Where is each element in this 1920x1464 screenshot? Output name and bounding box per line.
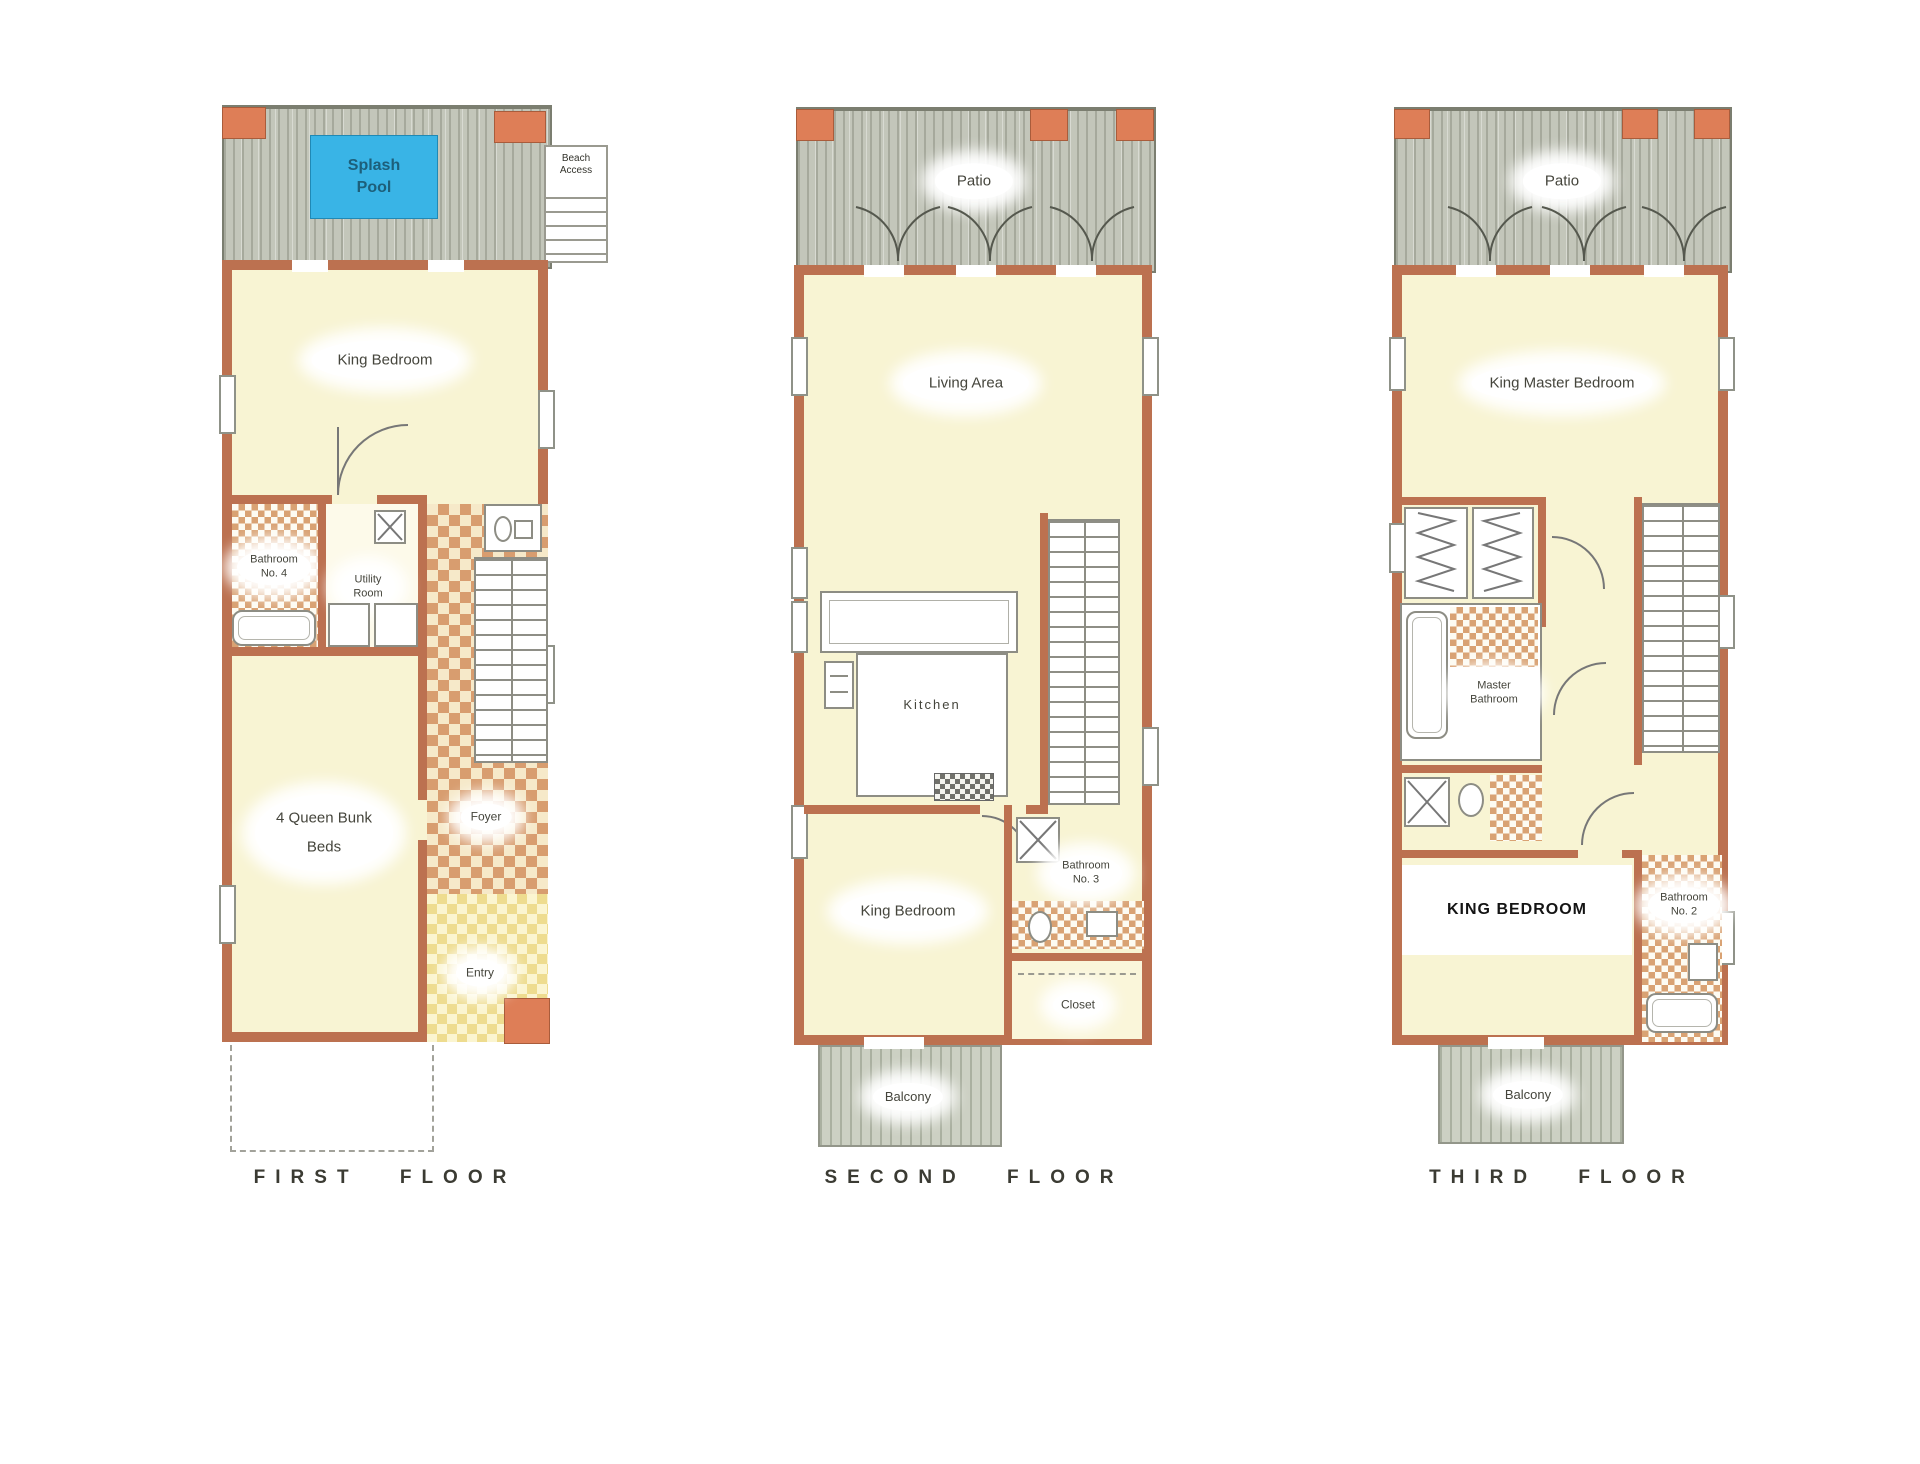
- bathtub-icon: [1646, 993, 1718, 1033]
- window: [791, 547, 808, 599]
- door-swing-icon: [1552, 661, 1608, 717]
- king-bedroom-label: KING BEDROOM: [1447, 901, 1587, 919]
- interior-wall: [1400, 765, 1542, 773]
- master-bathroom-floor: [1450, 607, 1538, 667]
- window: [219, 375, 236, 434]
- entry-label: Entry: [456, 960, 504, 987]
- deck-post: [1030, 109, 1068, 141]
- deck-post: [1394, 109, 1430, 139]
- interior-wall: [232, 495, 332, 504]
- wardrobe-closet: [1472, 507, 1534, 599]
- shower-icon: [1404, 777, 1450, 827]
- patio-label: Patio: [1523, 163, 1601, 199]
- counter-edge: [829, 600, 1009, 644]
- staircase: [1642, 503, 1720, 753]
- wall-block: [504, 998, 550, 1044]
- interior-wall: [1402, 850, 1578, 858]
- interior-wall: [418, 840, 427, 1042]
- deck-post: [494, 111, 546, 143]
- bathroom3-label: Bathroom No. 3: [1050, 855, 1122, 891]
- stair-rail: [1084, 521, 1086, 803]
- kitchen-counter: [820, 591, 1018, 653]
- door-gap: [1056, 265, 1096, 277]
- bunk-room-label: 4 Queen Bunk Beds: [255, 795, 393, 872]
- window: [1142, 727, 1159, 786]
- door-gap: [1550, 265, 1590, 277]
- interior-wall: [1402, 497, 1542, 505]
- door-gap: [864, 1037, 924, 1049]
- bathroom2-label: Bathroom No. 2: [1648, 887, 1720, 923]
- interior-wall: [1040, 513, 1048, 813]
- stair-rail: [511, 559, 513, 761]
- toilet-icon: [1028, 911, 1052, 943]
- living-area-label: Living Area: [903, 363, 1029, 403]
- interior-wall: [1004, 805, 1012, 1045]
- toilet-icon: [494, 516, 512, 542]
- patio-label: Patio: [935, 163, 1013, 199]
- first-floor-title: FIRST FLOOR: [192, 1167, 578, 1189]
- deck-post: [1694, 109, 1730, 139]
- window: [1142, 337, 1159, 396]
- stair-rail: [1682, 505, 1684, 751]
- interior-wall: [1004, 953, 1144, 961]
- bathtub-icon: [232, 610, 316, 646]
- deck-post: [1116, 109, 1154, 141]
- splash-pool: Splash Pool: [310, 135, 438, 219]
- interior-wall: [232, 647, 422, 656]
- beach-access-stairs: Beach Access: [544, 145, 608, 263]
- hall-bath-floor: [1490, 775, 1542, 841]
- deck-post: [1622, 109, 1658, 139]
- door-gap: [1488, 1037, 1544, 1049]
- french-door-icon: [852, 203, 944, 265]
- dryer-icon: [374, 603, 418, 647]
- closet-label: Closet: [1053, 993, 1103, 1018]
- master-bedroom-label: King Master Bedroom: [1471, 363, 1652, 403]
- foyer-label: Foyer: [461, 804, 512, 831]
- window: [791, 601, 808, 653]
- door-gap: [1456, 265, 1496, 277]
- sink-icon: [514, 520, 533, 539]
- first-floor-plan: Splash Pool Beach Access King Bedroom Ba…: [222, 105, 548, 1215]
- interior-wall: [804, 805, 980, 814]
- door-gap: [428, 260, 464, 272]
- third-floor-title: THIRD FLOOR: [1352, 1167, 1772, 1189]
- wardrobe-icon: [1476, 511, 1530, 595]
- french-door-icon: [1638, 203, 1730, 265]
- driveway-outline: [230, 1045, 434, 1152]
- shower-icon: [1016, 817, 1060, 863]
- deck-post: [796, 109, 834, 141]
- bathtub-icon: [1406, 611, 1448, 739]
- laundry-sink-icon: [374, 510, 406, 544]
- wardrobe-closet: [1404, 507, 1468, 599]
- window: [1718, 595, 1735, 649]
- closet-rod: [1018, 973, 1136, 975]
- door-swing-icon: [334, 421, 412, 499]
- king-bedroom-label: King Bedroom: [311, 340, 458, 380]
- second-floor-plan: Patio Living Area Kitchen: [794, 105, 1156, 1215]
- washer-icon: [328, 603, 370, 647]
- french-door-icon: [1046, 203, 1138, 265]
- door-gap: [1644, 265, 1684, 277]
- interior-wall: [318, 504, 326, 647]
- beach-access-label: Beach Access: [550, 153, 602, 177]
- utility-room-label: Utility Room: [341, 569, 395, 605]
- french-door-icon: [1538, 203, 1630, 265]
- door-gap: [956, 265, 996, 277]
- sink-icon: [1688, 943, 1718, 981]
- king-bedroom-label-panel: KING BEDROOM: [1402, 865, 1632, 955]
- interior-wall: [1634, 497, 1642, 765]
- second-floor-title: SECOND FLOOR: [764, 1167, 1184, 1189]
- interior-wall: [1634, 850, 1642, 1042]
- interior-wall: [1026, 805, 1048, 814]
- french-door-icon: [1444, 203, 1536, 265]
- french-door-icon: [944, 203, 1036, 265]
- toilet-icon: [1458, 783, 1484, 817]
- window: [791, 337, 808, 396]
- powder-room: [484, 504, 542, 552]
- stove-icon: [934, 773, 994, 801]
- window: [1389, 337, 1406, 391]
- door-swing-icon: [1580, 791, 1636, 847]
- sink-icon: [1086, 911, 1118, 937]
- door-gap: [292, 260, 328, 272]
- window: [538, 390, 555, 449]
- window: [219, 885, 236, 944]
- staircase: [1048, 519, 1120, 805]
- deck-post: [222, 107, 266, 139]
- door-swing-icon: [1550, 535, 1606, 591]
- third-floor-plan: Patio King Master Bedroom Master Bathroo…: [1392, 105, 1732, 1215]
- staircase: [474, 557, 548, 763]
- floor-plan-page: { "document_type": "vacation-home floor …: [0, 0, 1920, 1464]
- king-bedroom-label: King Bedroom: [840, 891, 975, 931]
- bathroom4-label: Bathroom No. 4: [237, 549, 311, 585]
- master-bathroom-label: Master Bathroom: [1456, 675, 1532, 711]
- splash-pool-label: Splash Pool: [339, 155, 409, 198]
- wardrobe-icon: [1408, 511, 1464, 595]
- door-gap: [864, 265, 904, 277]
- refrigerator-icon: [824, 661, 854, 709]
- window: [1718, 337, 1735, 391]
- stair-treads: [546, 197, 606, 261]
